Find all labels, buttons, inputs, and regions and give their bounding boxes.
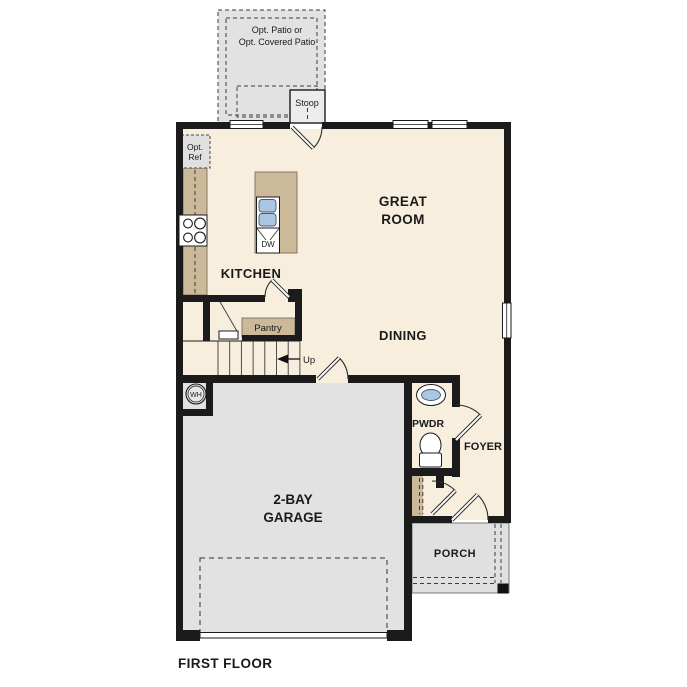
pwdr-sink-basin (422, 390, 441, 401)
opt-ref-label-line2: Ref (188, 152, 202, 162)
porch-post (498, 584, 509, 594)
toilet-tank (420, 453, 442, 467)
kitchen-label: KITCHEN (221, 266, 282, 281)
wall-understair (203, 295, 210, 341)
pwdr-label: PWDR (412, 418, 444, 430)
wall-pantry-bottom (242, 335, 302, 341)
understair-box (219, 331, 238, 339)
stoop-label: Stoop (295, 98, 319, 108)
porch-label: PORCH (434, 548, 476, 560)
wh-label: WH (190, 392, 202, 399)
porch: PORCH (412, 523, 509, 594)
pantry-label: Pantry (254, 323, 282, 334)
dining-label: DINING (379, 328, 427, 343)
up-label: Up (303, 355, 315, 366)
garage-label-line2: GARAGE (263, 510, 322, 525)
wall-wh-bottom (183, 409, 213, 416)
floor-plan-drawing: Opt. Patio or Opt. Covered Patio Stoop 2… (0, 0, 687, 687)
garage-door (200, 633, 387, 639)
wall-wh-right (206, 383, 213, 412)
patio-label-line2: Opt. Covered Patio (239, 37, 316, 47)
wall-garage-bottom-left (176, 630, 200, 641)
great-room-label-line1: GREAT (379, 194, 428, 209)
sink-bowl-2 (259, 214, 276, 227)
wall-garage-top-left (176, 375, 316, 383)
dw-label: DW (261, 240, 275, 249)
wall-kitchen (176, 295, 265, 302)
closet-shelf (412, 476, 423, 516)
wall-vestibule-stub (436, 468, 444, 488)
sink-bowl-1 (259, 200, 276, 213)
great-room-label-line2: ROOM (381, 212, 425, 227)
wall-garage-right (404, 375, 412, 641)
opt-ref-label-line1: Opt. (187, 142, 203, 152)
patio-label-line1: Opt. Patio or (252, 25, 303, 35)
garage-floor (183, 383, 404, 634)
foyer-label: FOYER (464, 441, 502, 453)
garage: 2-BAY GARAGE (183, 383, 404, 634)
stoop: Stoop (290, 90, 325, 123)
wall-pwdr-right-top (452, 383, 460, 407)
wall-pantry-right (295, 295, 302, 341)
garage-label-line1: 2-BAY (273, 492, 312, 507)
wall-garage-bottom-right (387, 630, 412, 641)
wall-pwdr-bottom (404, 468, 460, 476)
wall-front-right (488, 516, 511, 523)
plan-title: FIRST FLOOR (178, 656, 272, 671)
wall-front-left (404, 516, 452, 523)
cooktop (179, 215, 207, 246)
floor-plan-page: Opt. Patio or Opt. Covered Patio Stoop 2… (0, 0, 687, 687)
